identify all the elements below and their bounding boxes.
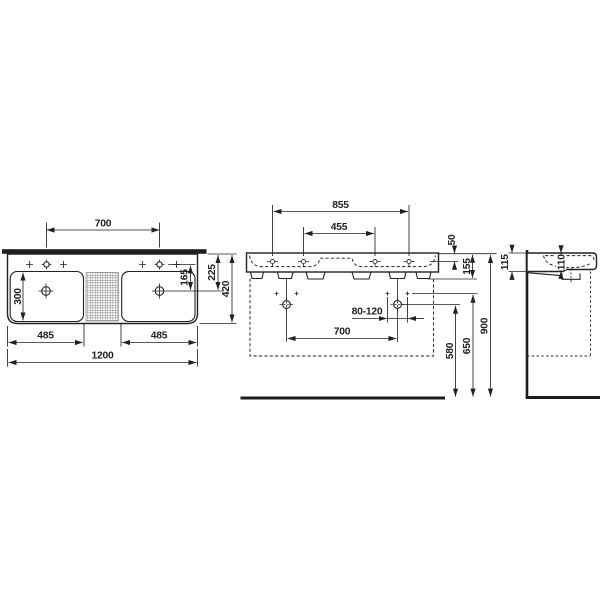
dim-855-label: 855: [332, 200, 349, 211]
front-dim-inner-holes: 455: [304, 222, 376, 256]
front-view: 855 455 50 155 80-120: [241, 200, 497, 398]
dim-700-label: 700: [95, 219, 112, 230]
plan-dim-total-width: 1200: [8, 349, 198, 367]
dim-580-label: 580: [445, 342, 456, 359]
side-underside-line: [527, 273, 563, 276]
dim-155-label: 155: [462, 258, 473, 275]
dim-900-label: 900: [480, 317, 491, 334]
dim-80-120-label: 80-120: [352, 307, 383, 318]
technical-drawing-page: 700 300 165 225 420 485: [0, 0, 600, 600]
dim-485-right-label: 485: [151, 331, 168, 342]
front-anchor-bolt-left: [280, 298, 294, 312]
dim-300-label: 300: [13, 288, 24, 305]
side-projection-dashed: [527, 272, 591, 357]
front-dim-rim-height: 900: [480, 255, 491, 397]
front-pilot-holes: [275, 292, 410, 296]
dim-165-label: 165: [180, 269, 191, 286]
front-wall-area-dashed: [250, 279, 434, 357]
dim-1200-label: 1200: [91, 351, 114, 362]
plan-dim-bowl-width-left: 485: [8, 324, 85, 347]
dim-110-label: 110: [557, 254, 568, 270]
plan-dim-tap-spacing: 700: [47, 219, 160, 248]
dim-50-label: 50: [447, 234, 458, 246]
dim-485-left-label: 485: [37, 331, 54, 342]
dim-115-label: 115: [500, 254, 511, 270]
plan-dim-bowl-width-right: 485: [121, 324, 198, 347]
dim-700-bolts-label: 700: [334, 327, 351, 338]
plan-wall-bar: [2, 249, 207, 254]
front-mounting-tabs: [251, 272, 432, 279]
dim-225-label: 225: [207, 264, 218, 281]
dim-455-label: 455: [331, 222, 348, 233]
dim-650-label: 650: [462, 337, 473, 354]
front-dim-fixing-range: 80-120: [352, 297, 424, 323]
side-view: 115 110: [500, 246, 600, 398]
plan-view: 700 300 165 225 420 485: [2, 219, 237, 367]
plan-center-shelf-hatch: [86, 273, 119, 322]
side-dim-height-at-wall: 115: [500, 246, 527, 279]
dim-420-label: 420: [221, 280, 232, 297]
technical-drawing-canvas: 700 300 165 225 420 485: [0, 0, 600, 600]
front-dim-bolt-spacing: 700: [288, 327, 397, 339]
